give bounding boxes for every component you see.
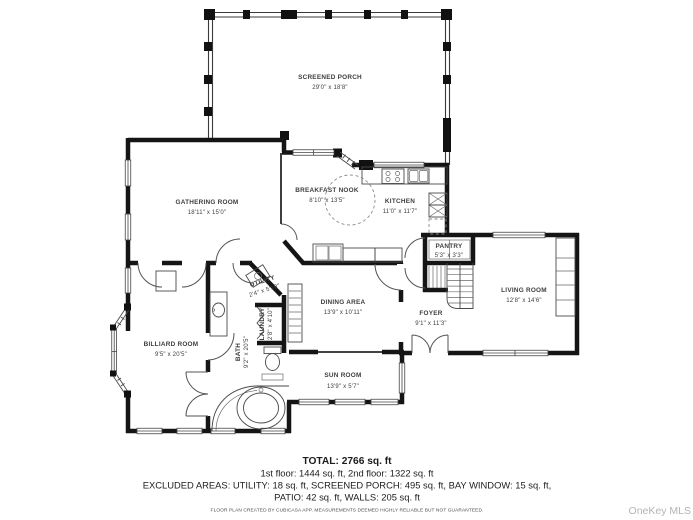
summary-block: TOTAL: 2766 sq. ft 1st floor: 1444 sq. f… <box>143 456 551 514</box>
svg-text:9'1" x 11'3": 9'1" x 11'3" <box>415 321 447 327</box>
vanity-sink-icon <box>210 292 227 336</box>
svg-text:18'11" x 15'0": 18'11" x 15'0" <box>188 210 227 216</box>
svg-text:29'0" x 18'8": 29'0" x 18'8" <box>312 85 348 91</box>
room-label-kitchen: KITCHEN 11'0" x 11'7" <box>383 198 418 215</box>
svg-text:BREAKFAST NOOK: BREAKFAST NOOK <box>295 187 359 194</box>
svg-text:11'0" x 11'7": 11'0" x 11'7" <box>383 209 418 215</box>
room-label-pantry: PANTRY 5'3" x 3'3" <box>435 243 463 259</box>
floor-plan-page: SCREENED PORCH 29'0" x 18'8" GATHERING R… <box>0 0 693 520</box>
svg-text:LAUNDRY: LAUNDRY <box>259 307 266 340</box>
closet-rod <box>429 266 445 288</box>
svg-text:KITCHEN: KITCHEN <box>385 198 415 205</box>
floor-plan: SCREENED PORCH 29'0" x 18'8" GATHERING R… <box>0 0 693 520</box>
oven-icon <box>429 193 447 217</box>
room-label-gathering-room: GATHERING ROOM 18'11" x 15'0" <box>175 199 238 216</box>
toilet-icon <box>264 347 281 371</box>
svg-text:9'5" x 20'5": 9'5" x 20'5" <box>155 352 187 358</box>
svg-text:FOYER: FOYER <box>419 310 442 317</box>
room-label-laundry: LAUNDRY 2'8" x 4'10" <box>259 307 274 340</box>
svg-text:LIVING ROOM: LIVING ROOM <box>501 287 547 294</box>
svg-text:DINING AREA: DINING AREA <box>321 299 366 306</box>
stairs-icon <box>447 263 473 309</box>
svg-text:5'3" x 3'3": 5'3" x 3'3" <box>435 253 463 259</box>
room-label-dining-area: DINING AREA 13'9" x 10'11" <box>321 299 366 316</box>
summary-excluded-2: PATIO: 42 sq. ft, WALLS: 205 sq. ft <box>274 492 420 503</box>
summary-excluded-1: EXCLUDED AREAS: UTILITY: 18 sq. ft, SCRE… <box>143 480 551 491</box>
room-label-foyer: FOYER 9'1" x 11'3" <box>415 310 447 327</box>
built-in-shelves <box>556 238 575 316</box>
room-label-living-room: LIVING ROOM 12'8" x 14'6" <box>501 287 547 304</box>
bath-shelf <box>262 374 283 380</box>
room-label-screened-porch: SCREENED PORCH 29'0" x 18'8" <box>298 74 362 91</box>
svg-text:8'10" x 13'5": 8'10" x 13'5" <box>309 198 345 204</box>
dining-buffet <box>288 284 302 342</box>
svg-text:BILLIARD ROOM: BILLIARD ROOM <box>144 341 199 348</box>
summary-total: TOTAL: 2766 sq. ft <box>302 456 392 467</box>
watermark: OneKey MLS <box>629 505 691 517</box>
svg-text:PANTRY: PANTRY <box>435 243 463 250</box>
refrigerator-icon <box>429 219 446 234</box>
svg-text:13'9" x 5'7": 13'9" x 5'7" <box>327 384 359 390</box>
bathtub-icon <box>212 386 289 431</box>
svg-text:SUN ROOM: SUN ROOM <box>324 372 361 379</box>
room-label-bath: BATH 9'2" x 20'5" <box>235 336 250 368</box>
svg-text:13'9" x 10'11": 13'9" x 10'11" <box>324 310 363 316</box>
summary-floors: 1st floor: 1444 sq. ft, 2nd floor: 1322 … <box>260 468 433 479</box>
svg-text:SCREENED PORCH: SCREENED PORCH <box>298 74 362 81</box>
svg-text:12'8" x 14'6": 12'8" x 14'6" <box>506 298 542 304</box>
svg-text:9'2" x 20'5": 9'2" x 20'5" <box>244 336 250 368</box>
svg-text:GATHERING ROOM: GATHERING ROOM <box>175 199 238 206</box>
room-label-utility: UTILITY 2'4" x 5'10" <box>249 274 281 299</box>
side-table <box>156 271 176 291</box>
room-label-sun-room: SUN ROOM 13'9" x 5'7" <box>324 372 361 390</box>
kitchen-sink-icon <box>408 169 429 183</box>
summary-disclaimer: FLOOR PLAN CREATED BY CUBICASA APP. MEAS… <box>211 508 484 514</box>
room-label-billiard-room: BILLIARD ROOM 9'5" x 20'5" <box>144 341 199 358</box>
svg-text:BATH: BATH <box>235 343 242 361</box>
svg-text:2'8" x 4'10": 2'8" x 4'10" <box>268 308 274 340</box>
stove-icon <box>382 169 404 184</box>
room-label-breakfast-nook: BREAKFAST NOOK 8'10" x 13'5" <box>295 187 359 204</box>
